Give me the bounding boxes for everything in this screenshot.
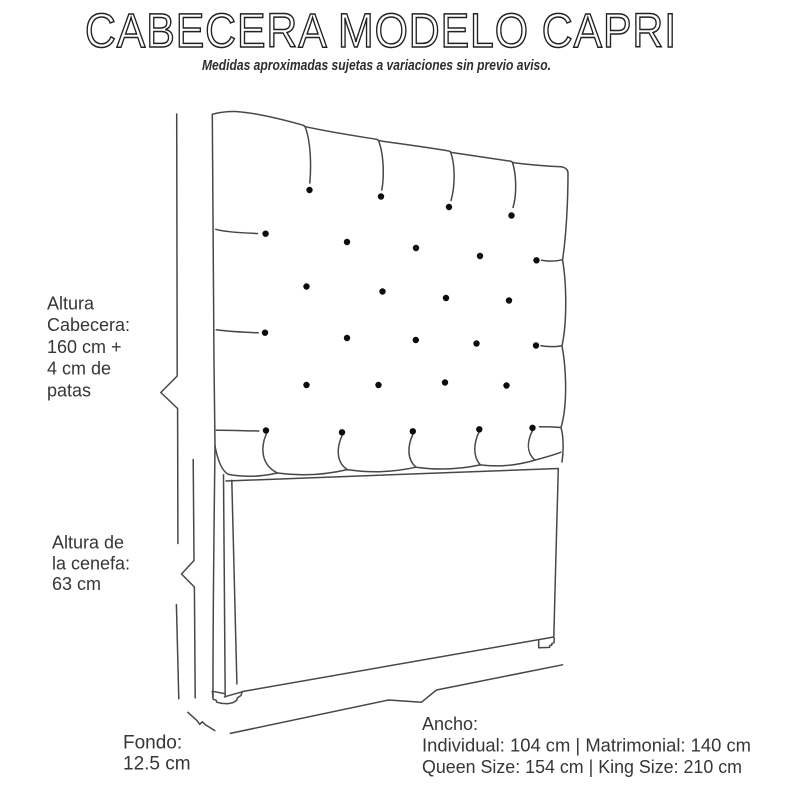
svg-text:Individual: 104 cm | Matrimoni: Individual: 104 cm | Matrimonial: 140 cm (422, 736, 751, 756)
svg-text:4 cm de: 4 cm de (47, 358, 111, 378)
svg-text:Altura: Altura (47, 294, 95, 314)
svg-text:Ancho:: Ancho: (422, 714, 478, 734)
svg-text:CABECERA MODELO CAPRI: CABECERA MODELO CAPRI (85, 5, 677, 58)
svg-text:Queen Size: 154 cm | King Size: Queen Size: 154 cm | King Size: 210 cm (422, 757, 742, 777)
svg-text:160 cm +: 160 cm + (47, 337, 122, 357)
svg-text:Altura de: Altura de (52, 533, 124, 553)
svg-text:Medidas aproximadas sujetas a: Medidas aproximadas sujetas a variacione… (202, 58, 551, 74)
svg-text:12.5 cm: 12.5 cm (123, 754, 191, 775)
svg-text:la cenefa:: la cenefa: (52, 553, 130, 573)
svg-text:Cabecera:: Cabecera: (47, 315, 130, 335)
svg-text:63 cm: 63 cm (52, 574, 101, 594)
svg-text:patas: patas (47, 381, 91, 401)
svg-text:Fondo:: Fondo: (123, 733, 182, 754)
